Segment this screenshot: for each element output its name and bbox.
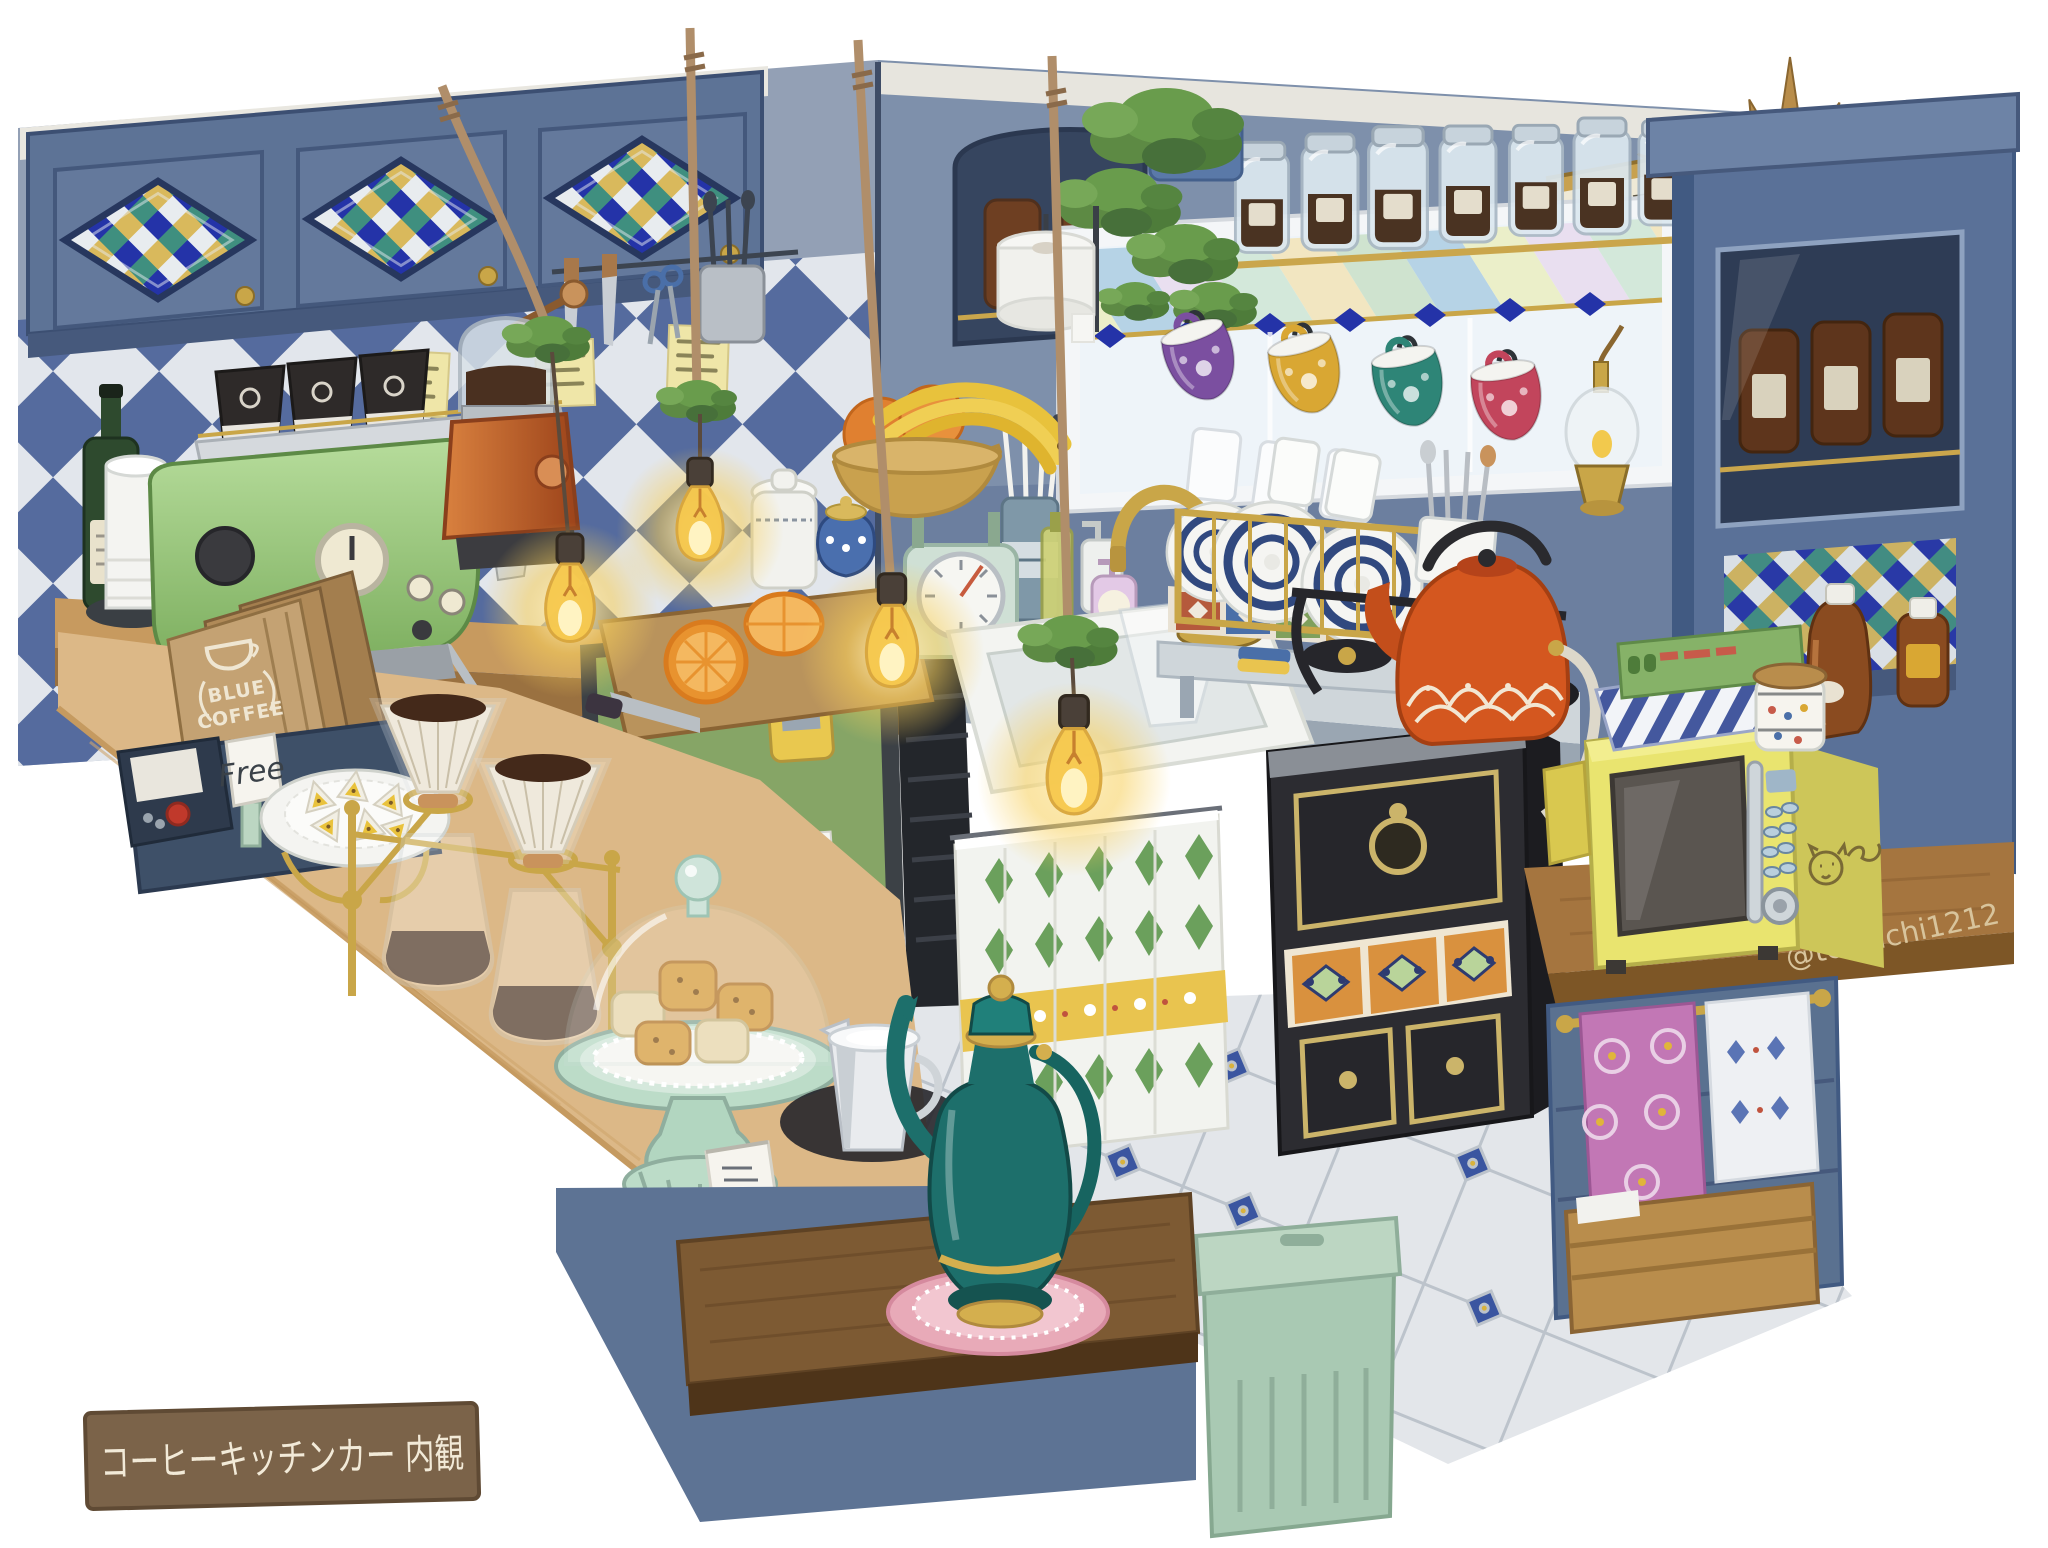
microwave-display [1765,769,1796,793]
glass-bean-jar [1302,134,1358,250]
sponge [1237,646,1291,675]
caption-sign: コーヒーキッチンカー 内観 [85,1403,479,1509]
towel-cabinet [1548,978,1842,1332]
door-handle [1748,762,1762,922]
snack-box [1544,762,1590,864]
scene-canvas: 営業許可証 [0,0,2048,1548]
grinder-crank [561,281,587,307]
machine-knob [197,528,253,584]
glass-bean-jar [1574,118,1630,234]
red-button [167,803,189,825]
pot-finial [989,976,1013,1000]
black-cabinet [1268,724,1568,1154]
dome-knob [676,856,720,900]
knife-icon [564,258,579,282]
carafe-1 [384,835,493,989]
pink-towel [1580,1003,1706,1222]
sauce-bottle [1898,598,1948,706]
hutch-jars [1740,314,1942,452]
serving-step [556,1186,1198,1522]
machine-button [412,620,432,640]
glass-bean-jar [1509,125,1562,235]
coffee-kitchen-car-illustration: 営業許可証 [0,0,2048,1548]
cabinet-knob-icon [236,287,254,305]
glass-bean-jar [1440,126,1496,242]
card-device [118,738,232,846]
caption-text: コーヒーキッチンカー 内観 [100,1431,465,1487]
machine-button [440,590,464,614]
drawer-knocker [1372,820,1424,872]
glass-bean-jar [1369,127,1428,249]
cabinet-knob-icon [479,267,497,285]
candy-jar [1754,664,1826,750]
white-towel [1706,993,1818,1182]
knife-icon [602,254,617,278]
trash-bin [1196,1218,1400,1536]
machine-button [408,576,432,600]
